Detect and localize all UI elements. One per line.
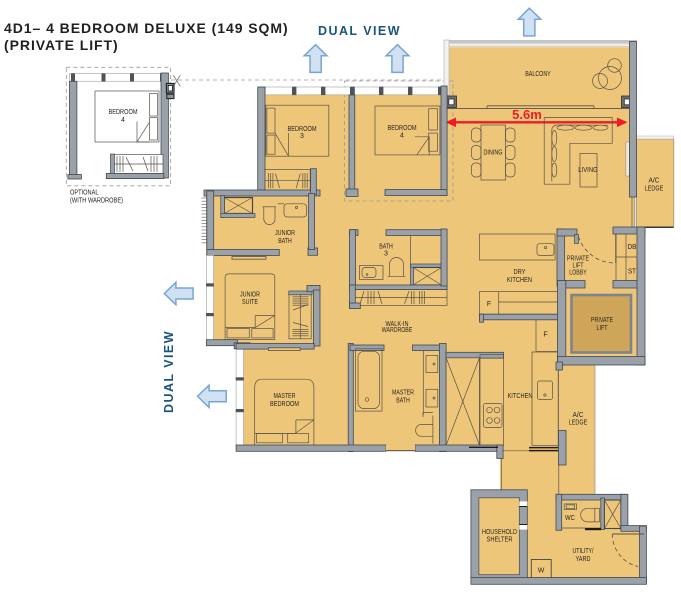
svg-text:LEDGE: LEDGE (569, 420, 588, 427)
svg-text:(PRIVATE LIFT): (PRIVATE LIFT) (4, 37, 119, 53)
svg-text:KITCHEN: KITCHEN (507, 277, 532, 284)
svg-text:(WITH WARDROBE): (WITH WARDROBE) (70, 198, 123, 205)
svg-text:ST: ST (628, 269, 637, 276)
svg-text:LIFT: LIFT (597, 325, 609, 332)
svg-text:3: 3 (384, 251, 388, 258)
svg-text:PRIVATE: PRIVATE (567, 255, 589, 262)
svg-text:DUAL VIEW: DUAL VIEW (162, 330, 176, 413)
svg-text:3: 3 (300, 133, 304, 140)
svg-text:UTILITY/: UTILITY/ (573, 548, 594, 555)
svg-text:DRY: DRY (514, 269, 526, 276)
svg-text:SHELTER: SHELTER (487, 537, 513, 544)
svg-text:4D1– 4 BEDROOM DELUXE (149 SQM: 4D1– 4 BEDROOM DELUXE (149 SQM) (4, 20, 289, 36)
svg-text:BEDROOM: BEDROOM (109, 109, 138, 116)
svg-text:A/C: A/C (573, 412, 584, 419)
svg-text:BATH: BATH (278, 238, 292, 245)
svg-text:WC: WC (565, 515, 575, 522)
svg-text:SUITE: SUITE (242, 299, 258, 306)
svg-text:OPTIONAL: OPTIONAL (70, 190, 99, 197)
svg-text:BATH: BATH (396, 398, 410, 405)
svg-text:F: F (543, 332, 547, 339)
svg-text:5.6m: 5.6m (512, 107, 542, 122)
svg-text:JUNIOR: JUNIOR (240, 292, 260, 299)
svg-text:LEDGE: LEDGE (645, 186, 664, 193)
svg-text:DB: DB (628, 244, 637, 251)
svg-text:A/C: A/C (649, 178, 660, 185)
svg-text:YARD: YARD (576, 556, 591, 563)
svg-text:BEDROOM: BEDROOM (270, 401, 299, 408)
svg-text:WARDROBE: WARDROBE (382, 327, 413, 334)
svg-text:HOUSEHOLD: HOUSEHOLD (482, 529, 517, 536)
svg-text:BATH: BATH (379, 244, 393, 251)
svg-text:MASTER: MASTER (392, 390, 414, 397)
svg-text:KITCHEN: KITCHEN (508, 393, 533, 400)
svg-text:LOBBY: LOBBY (569, 269, 587, 276)
svg-text:4: 4 (400, 132, 404, 139)
svg-text:DINING: DINING (484, 150, 503, 157)
svg-text:4: 4 (121, 117, 125, 124)
svg-text:LIVING: LIVING (578, 167, 597, 174)
svg-text:BEDROOM: BEDROOM (388, 125, 417, 132)
svg-text:PRIVATE: PRIVATE (591, 317, 613, 324)
svg-text:F: F (487, 301, 491, 308)
svg-text:JUNIOR: JUNIOR (275, 230, 295, 237)
svg-text:BEDROOM: BEDROOM (288, 126, 317, 133)
svg-text:DUAL VIEW: DUAL VIEW (318, 24, 401, 38)
svg-text:MASTER: MASTER (274, 393, 296, 400)
svg-text:BALCONY: BALCONY (525, 71, 551, 78)
svg-text:W: W (538, 568, 545, 575)
svg-text:LIFT: LIFT (573, 262, 585, 269)
